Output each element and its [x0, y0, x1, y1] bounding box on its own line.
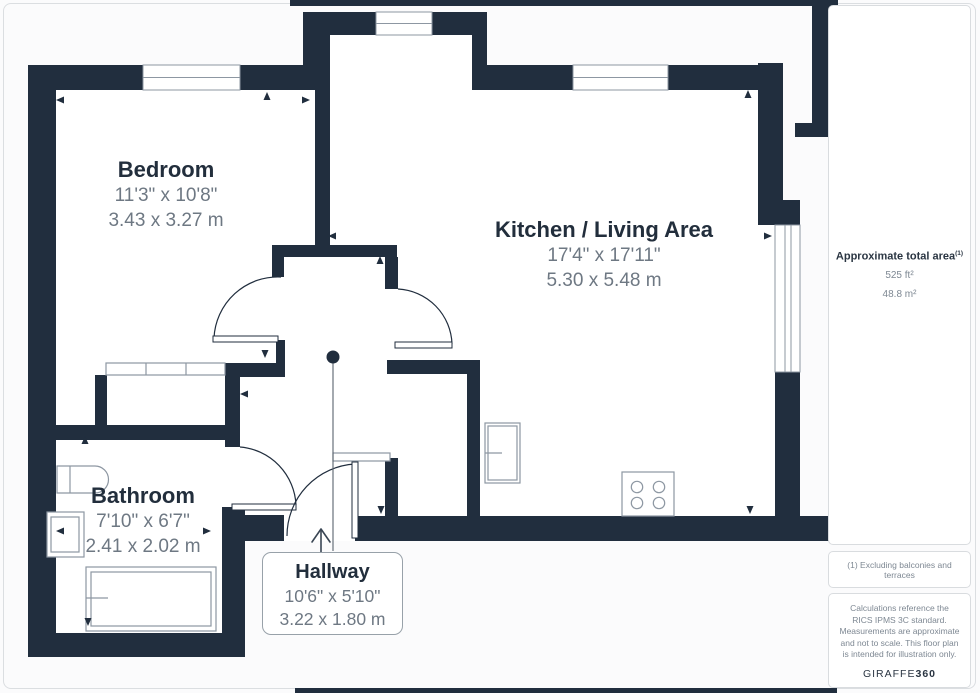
disclaimer-text: Calculations reference the RICS IPMS 3C … [839, 603, 960, 661]
total-area-panel: Approximate total area(1) 525 ft² 48.8 m… [828, 5, 971, 545]
giraffe360-logo: GIRAFFE360 [839, 669, 960, 681]
fridge [485, 423, 520, 483]
room-dimensions-imperial: 11'3" x 10'8" [56, 183, 276, 208]
total-area-imperial: 525 ft² [885, 270, 913, 281]
room-dimensions-imperial: 10'6" x 5'10" [263, 585, 402, 608]
wardrobe [106, 363, 225, 375]
room-dimensions-metric: 5.30 x 5.48 m [474, 268, 734, 293]
kitchen-window [573, 65, 668, 90]
room-dimensions-imperial: 7'10" x 6'7" [33, 509, 253, 534]
room-name: Hallway [263, 559, 402, 585]
room-label-bathroom: Bathroom 7'10" x 6'7" 2.41 x 2.02 m [33, 482, 253, 559]
room-dimensions-imperial: 17'4" x 17'11" [474, 243, 734, 268]
logo-text-primary: GIRAFFE [863, 668, 916, 680]
total-area-title: Approximate total area(1) [836, 250, 963, 263]
room-dimensions-metric: 3.43 x 3.27 m [56, 208, 276, 233]
total-area-title-text: Approximate total area [836, 250, 955, 262]
bathtub [86, 567, 216, 631]
floorplan-page: { "rooms": [ {"name": "Bedroom", "imperi… [0, 0, 980, 693]
total-area-metric: 48.8 m² [883, 289, 917, 300]
bay-window [376, 12, 432, 35]
room-label-hallway: Hallway 10'6" x 5'10" 3.22 x 1.80 m [262, 552, 403, 635]
hallway-cabinet [333, 453, 390, 461]
bedroom-window [143, 65, 240, 90]
living-area-tall-window [775, 225, 800, 372]
logo-text-secondary: 360 [915, 668, 936, 680]
room-dot [327, 351, 340, 364]
room-name: Kitchen / Living Area [474, 216, 734, 243]
disclaimer-panel: Calculations reference the RICS IPMS 3C … [828, 593, 971, 688]
room-dimensions-metric: 3.22 x 1.80 m [263, 608, 402, 631]
room-name: Bathroom [33, 482, 253, 509]
footnote-panel: (1) Excluding balconies and terraces [828, 551, 971, 588]
room-name: Bedroom [56, 156, 276, 183]
room-dimensions-metric: 2.41 x 2.02 m [33, 534, 253, 559]
stove-icon [622, 472, 674, 516]
footnote-text: (1) Excluding balconies and terraces [837, 560, 962, 580]
room-label-bedroom: Bedroom 11'3" x 10'8" 3.43 x 3.27 m [56, 156, 276, 233]
flat-footprint [28, 12, 800, 657]
room-label-kitchen-living: Kitchen / Living Area 17'4" x 17'11" 5.3… [474, 216, 734, 293]
footnote-marker: (1) [955, 250, 963, 257]
